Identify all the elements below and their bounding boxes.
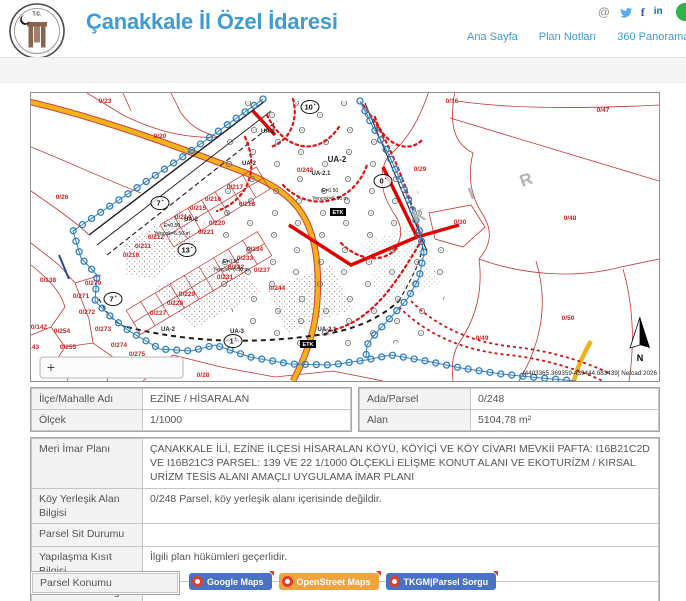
plus-icon: + bbox=[47, 359, 55, 375]
row-label: Meri İmar Planı bbox=[32, 439, 143, 489]
parcel-label: 0/233 bbox=[237, 255, 254, 262]
parcel-label: 0/210 bbox=[123, 252, 140, 259]
row-value bbox=[143, 523, 659, 546]
parcel-label: 0/273 bbox=[95, 326, 112, 333]
parcel-label: 0/221 bbox=[198, 229, 215, 236]
watermark-letter: I bbox=[466, 184, 477, 203]
note-label: E=0.50 bbox=[164, 223, 181, 229]
parcel-label: 0/254 bbox=[54, 328, 71, 335]
watermark-letter: R bbox=[517, 169, 535, 191]
header: T.C. Çanakkale İl Özel İdaresi @ f in An… bbox=[0, 0, 686, 57]
note-label: E=0.50 bbox=[223, 259, 240, 265]
parcel-label: 0/28 bbox=[197, 372, 210, 379]
parcel-label: 0/26 bbox=[56, 194, 69, 201]
logo-tc-text: T.C. bbox=[33, 12, 43, 18]
site-title: Çanakkale İl Özel İdaresi bbox=[86, 9, 338, 35]
parcel-label: 0/244 bbox=[269, 285, 286, 292]
openstreet-maps-button[interactable]: OpenStreet Maps bbox=[279, 573, 379, 590]
parcel-label: 0/271 bbox=[73, 293, 90, 300]
zone-label: UA-2 bbox=[184, 217, 199, 223]
facebook-icon[interactable]: f bbox=[641, 6, 645, 18]
button-label: OpenStreet Maps bbox=[297, 577, 371, 587]
row-value: 0/248 Parsel, köy yerleşik alanı içerisi… bbox=[143, 488, 659, 523]
parcel-label: 0/16 bbox=[446, 98, 459, 105]
etk-box-label: ETK bbox=[303, 342, 314, 348]
parcel-location-row: Parsel Konumu Google Maps OpenStreet Map… bbox=[30, 571, 496, 595]
row-value: 0/248 bbox=[471, 389, 659, 410]
main-nav: Ana Sayfa Plan Notları 360 Panorama Yaz bbox=[467, 31, 686, 43]
table-row: Ölçek 1/1000 bbox=[32, 410, 351, 431]
info-table-left: İlçe/Mahalle Adı EZİNE / HİSARALAN Ölçek… bbox=[30, 387, 352, 432]
cadastral-map-svg: KIR0/230/200/260/160/470/290/300/480/490… bbox=[31, 93, 659, 381]
note-label: Yençok=6.50 m bbox=[154, 231, 190, 237]
parcel-label: 0/47 bbox=[597, 107, 610, 114]
parcel-label: 0/228 bbox=[167, 300, 184, 307]
row-value: 5104,78 m² bbox=[471, 410, 659, 431]
location-label: Parsel Konumu bbox=[32, 573, 178, 593]
whatsapp-icon[interactable] bbox=[676, 3, 686, 21]
info-table-right: Ada/Parsel 0/248 Alan 5104,78 m² bbox=[358, 387, 660, 432]
nav-360-panorama[interactable]: 360 Panorama bbox=[617, 31, 686, 43]
north-arrow-icon: N bbox=[630, 317, 650, 363]
zone-label: UA-2.1 bbox=[311, 171, 331, 177]
parcel-boundaries bbox=[31, 93, 659, 381]
parcel-map[interactable]: KIR0/230/200/260/160/470/290/300/480/490… bbox=[30, 92, 660, 382]
parcel-label: 0/255 bbox=[60, 344, 77, 351]
parcel-label: 0/50 bbox=[562, 315, 575, 322]
parcel-label: 0/142 bbox=[31, 324, 48, 331]
social-icons: @ f in bbox=[598, 5, 663, 19]
row-value: 1/1000 bbox=[143, 410, 351, 431]
parcel-label: 0/211 bbox=[135, 243, 151, 250]
bold-red-lines bbox=[253, 111, 459, 265]
parcel-label: 0/229 bbox=[179, 291, 196, 298]
parcel-label: 0/234 bbox=[247, 246, 264, 253]
row-label: Köy Yerleşik Alan Bilgisi bbox=[32, 488, 143, 523]
parcel-label: 0/237 bbox=[254, 267, 271, 274]
zone-label: UA-2 bbox=[261, 129, 276, 135]
note-label: E=0.50 bbox=[322, 188, 339, 194]
etk-box-label: ETK bbox=[333, 210, 344, 216]
parcel-label: 0/272 bbox=[79, 309, 96, 316]
map-attribution: [4403365.369359-439444.083439] Netcad 20… bbox=[523, 370, 658, 377]
zone-label: UA-2 bbox=[242, 161, 257, 167]
tkgm-parsel-sorgu-button[interactable]: TKGM|Parsel Sorgu bbox=[386, 573, 497, 590]
parcel-label: 0/215 bbox=[190, 205, 207, 212]
parcel-label: 0/216 bbox=[205, 196, 222, 203]
linkedin-icon[interactable]: in bbox=[654, 6, 663, 18]
table-row: Ada/Parsel 0/248 bbox=[360, 389, 659, 410]
map-pin-icon bbox=[389, 576, 400, 587]
google-maps-button[interactable]: Google Maps bbox=[189, 573, 272, 590]
parcel-label: 0/231 bbox=[217, 274, 234, 281]
row-label: Parsel Sit Durumu bbox=[32, 523, 143, 546]
parcel-label: 0/270 bbox=[85, 280, 102, 287]
parcel-label: 0/48 bbox=[564, 215, 577, 222]
parcel-label: 0/218 bbox=[239, 201, 256, 208]
table-row: İlçe/Mahalle Adı EZİNE / HİSARALAN bbox=[32, 389, 351, 410]
parcel-label: 0/29 bbox=[414, 166, 427, 173]
page: T.C. Çanakkale İl Özel İdaresi @ f in An… bbox=[0, 0, 686, 601]
municipality-logo-icon: T.C. bbox=[1, 2, 73, 60]
note-label: Yençok=6.50 m bbox=[312, 196, 348, 202]
button-label: Google Maps bbox=[207, 577, 264, 587]
parcel-label: 0/227 bbox=[150, 310, 167, 317]
watermark-letter: K bbox=[410, 205, 429, 227]
parcel-label: 0/20 bbox=[154, 133, 167, 140]
nav-plan-notlari[interactable]: Plan Notları bbox=[539, 31, 596, 43]
zone-label: UA-2 bbox=[328, 155, 347, 164]
row-label: Ölçek bbox=[32, 410, 143, 431]
parcel-label: 0/23 bbox=[99, 98, 112, 105]
row-value: ÇANAKKALE İLİ, EZİNE İLÇESİ HİSARALAN KÖ… bbox=[143, 439, 659, 489]
header-divider bbox=[0, 57, 686, 83]
parcel-label: 0/138 bbox=[40, 277, 57, 284]
parcel-label: 0/49 bbox=[476, 335, 489, 342]
zone-label: UA-2 bbox=[161, 327, 176, 333]
row-value: EZİNE / HİSARALAN bbox=[143, 389, 351, 410]
row-label: Ada/Parsel bbox=[360, 389, 471, 410]
parcel-label: 0/143 bbox=[31, 344, 40, 351]
parcel-label: 0/274 bbox=[111, 342, 128, 349]
button-label: TKGM|Parsel Sorgu bbox=[404, 577, 489, 587]
row-label: İlçe/Mahalle Adı bbox=[32, 389, 143, 410]
table-row: Parsel Sit Durumu bbox=[32, 523, 659, 546]
parcel-label: 0/220 bbox=[209, 220, 226, 227]
parcel-label: 0/217 bbox=[227, 184, 244, 191]
map-pin-icon bbox=[282, 576, 293, 587]
map-zoom-button[interactable]: + bbox=[40, 357, 183, 378]
north-label: N bbox=[637, 353, 644, 363]
map-pin-icon bbox=[192, 576, 203, 587]
parcel-label: 0/30 bbox=[454, 219, 467, 226]
table-row: Köy Yerleşik Alan Bilgisi 0/248 Parsel, … bbox=[32, 488, 659, 523]
twitter-icon[interactable] bbox=[619, 7, 632, 18]
row-label: Alan bbox=[360, 410, 471, 431]
table-row: Alan 5104,78 m² bbox=[360, 410, 659, 431]
tree-symbols bbox=[197, 100, 472, 357]
table-row: Meri İmar Planı ÇANAKKALE İLİ, EZİNE İLÇ… bbox=[32, 439, 659, 489]
zone-label: UA-2.1 bbox=[317, 327, 337, 333]
note-label: Yençok=6.50 m bbox=[213, 267, 249, 273]
email-icon[interactable]: @ bbox=[598, 6, 610, 18]
nav-ana-sayfa[interactable]: Ana Sayfa bbox=[467, 31, 518, 43]
